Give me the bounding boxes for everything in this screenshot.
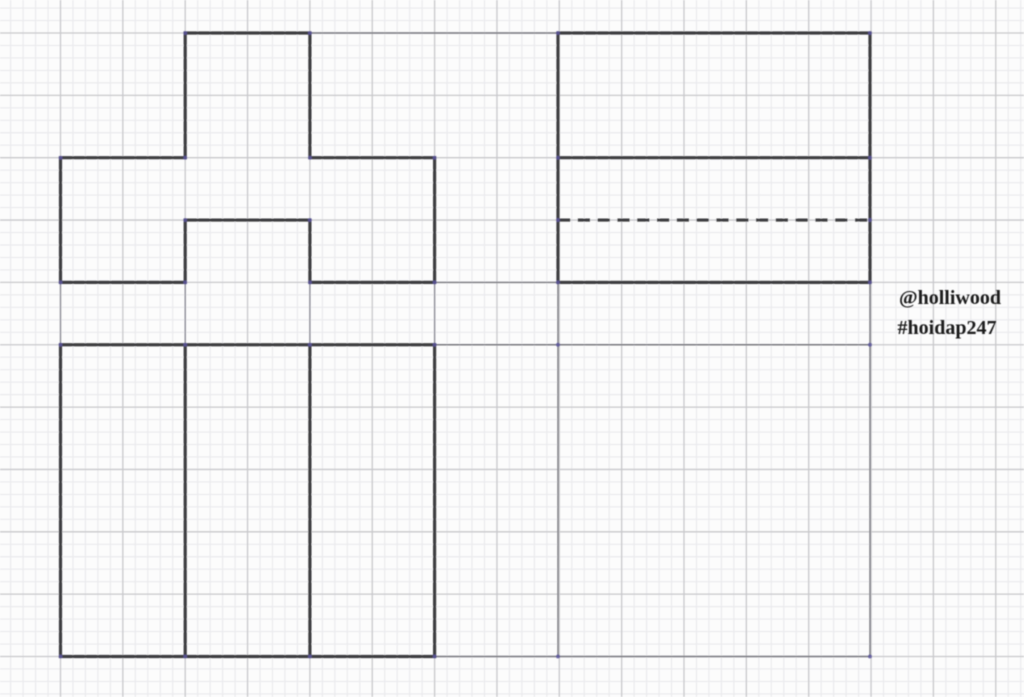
svg-text:@holliwood: @holliwood xyxy=(899,287,1001,309)
svg-text:#hoidap247: #hoidap247 xyxy=(898,317,997,339)
